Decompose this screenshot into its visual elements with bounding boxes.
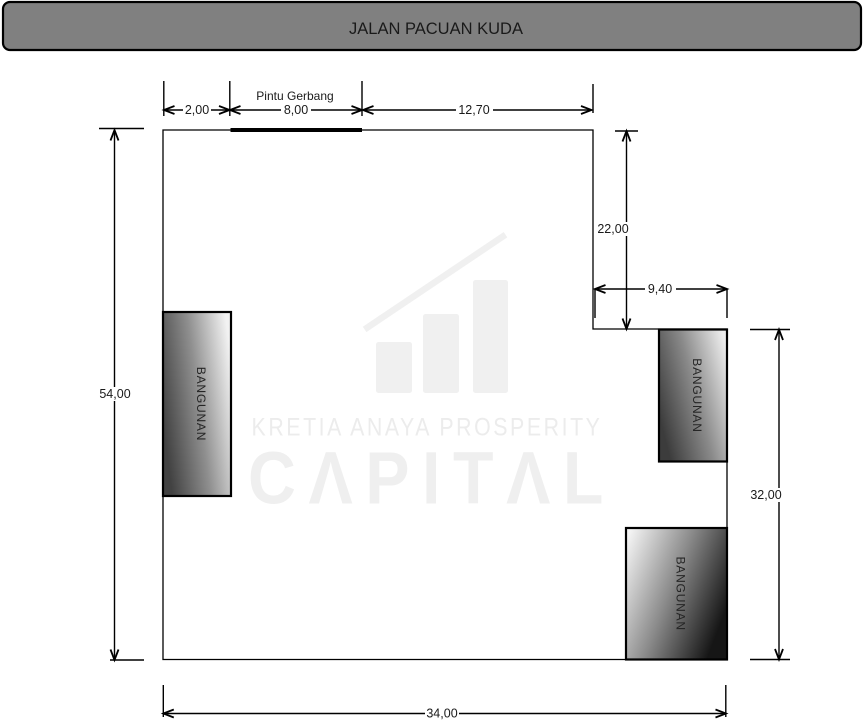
svg-text:2,00: 2,00 — [185, 103, 209, 117]
svg-text:Pintu Gerbang: Pintu Gerbang — [256, 89, 333, 103]
svg-text:BANGUNAN: BANGUNAN — [674, 556, 688, 630]
svg-text:12,70: 12,70 — [458, 103, 489, 117]
svg-text:CΛPITΛL: CΛPITΛL — [248, 437, 616, 520]
svg-text:34,00: 34,00 — [426, 707, 457, 720]
svg-text:32,00: 32,00 — [750, 488, 781, 502]
svg-text:54,00: 54,00 — [99, 387, 130, 401]
svg-text:BANGUNAN: BANGUNAN — [690, 358, 704, 432]
svg-text:JALAN PACUAN KUDA: JALAN PACUAN KUDA — [349, 20, 523, 38]
svg-text:22,00: 22,00 — [597, 222, 628, 236]
svg-text:BANGUNAN: BANGUNAN — [194, 367, 208, 441]
svg-text:9,40: 9,40 — [648, 282, 672, 296]
svg-text:8,00: 8,00 — [284, 103, 308, 117]
